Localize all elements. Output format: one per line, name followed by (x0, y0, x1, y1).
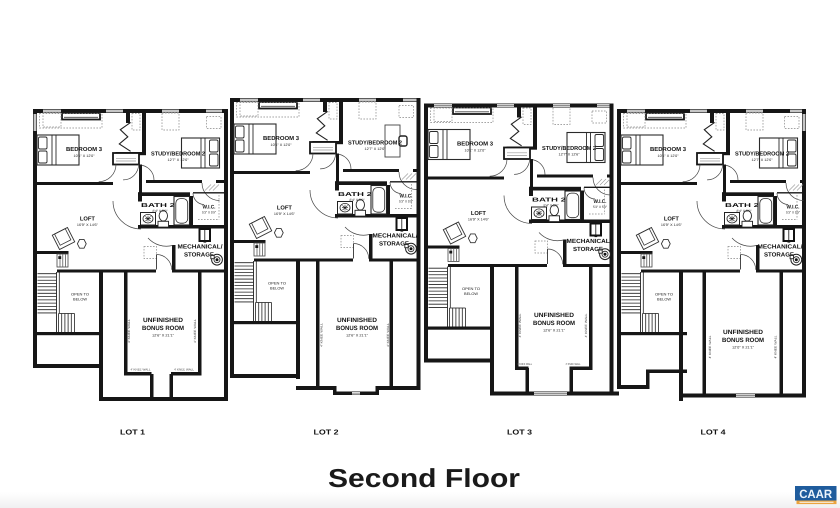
svg-text:8'4" X 5'0": 8'4" X 5'0" (737, 209, 753, 213)
svg-text:BEDROOM 3: BEDROOM 3 (650, 146, 687, 153)
svg-text:4' KNEE WALL: 4' KNEE WALL (774, 335, 778, 358)
svg-text:10'1" X 12'0": 10'1" X 12'0" (271, 143, 293, 147)
svg-text:LOT 2: LOT 2 (314, 428, 339, 437)
svg-text:8'4" X 5'0": 8'4" X 5'0" (544, 204, 560, 208)
svg-text:5'3" X 5'9": 5'3" X 5'9" (202, 211, 217, 215)
svg-text:4' KNEE WALL: 4' KNEE WALL (174, 368, 194, 372)
svg-text:UNFINISHED: UNFINISHED (534, 312, 575, 319)
svg-text:LOT 3: LOT 3 (507, 428, 532, 437)
svg-text:5'3" X 5'9": 5'3" X 5'9" (593, 205, 608, 209)
svg-text:12'7" X 12'6": 12'7" X 12'6" (752, 158, 774, 162)
svg-text:Second Floor: Second Floor (328, 463, 520, 493)
svg-text:4' KNEE WALL: 4' KNEE WALL (193, 319, 197, 343)
svg-text:MECHANICAL/: MECHANICAL/ (178, 243, 223, 250)
svg-text:4' KNEE WALL: 4' KNEE WALL (386, 323, 390, 347)
svg-text:4' KNEE WALL: 4' KNEE WALL (319, 323, 323, 347)
svg-text:LOT 4: LOT 4 (701, 428, 726, 437)
svg-text:MECHANICAL/: MECHANICAL/ (373, 232, 418, 239)
svg-text:OPEN TO: OPEN TO (655, 293, 673, 297)
svg-text:10'1" X 12'0": 10'1" X 12'0" (465, 149, 487, 153)
svg-text:8'4" X 5'0": 8'4" X 5'0" (350, 198, 366, 202)
svg-text:OPEN TO: OPEN TO (71, 293, 89, 297)
svg-text:MECHANICAL/: MECHANICAL/ (758, 243, 803, 250)
svg-text:12'0" X 21'1": 12'0" X 21'1" (732, 346, 755, 350)
svg-text:4' KNEE WALL: 4' KNEE WALL (131, 368, 151, 372)
svg-text:STUDY/BEDROOM 2: STUDY/BEDROOM 2 (735, 150, 789, 157)
svg-text:8'4" X 5'0": 8'4" X 5'0" (153, 209, 169, 213)
svg-text:BONUS ROOM: BONUS ROOM (533, 320, 575, 327)
svg-text:UNFINISHED: UNFINISHED (337, 317, 378, 324)
svg-text:4' KNEE WALL: 4' KNEE WALL (584, 313, 588, 337)
svg-text:BEDROOM 3: BEDROOM 3 (263, 135, 300, 142)
svg-text:4' KNEE WALL: 4' KNEE WALL (127, 319, 131, 343)
svg-text:BONUS ROOM: BONUS ROOM (722, 337, 764, 344)
svg-text:5'3" X 5'9": 5'3" X 5'9" (786, 211, 801, 215)
svg-text:10'1" X 12'0": 10'1" X 12'0" (658, 154, 680, 158)
svg-text:STUDY/BEDROOM 2: STUDY/BEDROOM 2 (151, 150, 205, 157)
svg-text:LOFT: LOFT (277, 205, 292, 212)
svg-text:BEDROOM 3: BEDROOM 3 (457, 141, 494, 148)
svg-text:16'9" X 14'6": 16'9" X 14'6" (468, 218, 490, 222)
svg-text:LOFT: LOFT (471, 210, 486, 217)
svg-text:4' KNEE WALL: 4' KNEE WALL (518, 313, 522, 337)
svg-text:BONUS ROOM: BONUS ROOM (142, 325, 184, 332)
svg-text:MECHANICAL/: MECHANICAL/ (567, 238, 612, 245)
svg-text:STORAGE: STORAGE (764, 252, 794, 259)
svg-text:UNFINISHED: UNFINISHED (143, 317, 184, 324)
svg-text:STORAGE: STORAGE (184, 252, 214, 259)
svg-text:STUDY/BEDROOM 2: STUDY/BEDROOM 2 (542, 145, 596, 152)
svg-text:CAAR: CAAR (799, 487, 832, 501)
svg-text:OPEN TO: OPEN TO (462, 287, 480, 291)
svg-text:16'9" X 14'6": 16'9" X 14'6" (661, 223, 683, 227)
svg-text:LOT 1: LOT 1 (120, 428, 145, 437)
svg-text:STUDY/BEDROOM 2: STUDY/BEDROOM 2 (348, 139, 402, 146)
svg-text:BELOW: BELOW (73, 298, 88, 302)
svg-text:16'9" X 14'6": 16'9" X 14'6" (274, 212, 296, 216)
svg-text:4' KNEE WALL: 4' KNEE WALL (566, 362, 581, 366)
svg-text:UNFINISHED: UNFINISHED (723, 329, 764, 336)
svg-text:12'6" X 21'1": 12'6" X 21'1" (346, 334, 369, 338)
svg-text:BEDROOM 3: BEDROOM 3 (66, 146, 103, 153)
svg-text:4' KNEE WALL: 4' KNEE WALL (708, 335, 712, 358)
svg-text:BELOW: BELOW (464, 292, 479, 296)
svg-text:OPEN TO: OPEN TO (268, 282, 286, 286)
svg-text:4' KNEE WALL: 4' KNEE WALL (517, 362, 532, 366)
svg-text:BELOW: BELOW (657, 298, 672, 302)
svg-text:12'6" X 21'1": 12'6" X 21'1" (152, 334, 175, 338)
svg-text:BELOW: BELOW (270, 287, 285, 291)
svg-text:BONUS ROOM: BONUS ROOM (336, 325, 378, 332)
svg-text:LOFT: LOFT (664, 216, 679, 223)
svg-text:12'6" X 21'1": 12'6" X 21'1" (543, 329, 566, 333)
svg-text:12'7" X 12'6": 12'7" X 12'6" (168, 158, 190, 162)
svg-text:16'9" X 14'6": 16'9" X 14'6" (77, 223, 99, 227)
svg-text:12'7" X 12'6": 12'7" X 12'6" (559, 153, 581, 157)
svg-text:10'1" X 12'0": 10'1" X 12'0" (74, 154, 96, 158)
svg-text:LOFT: LOFT (80, 216, 95, 223)
svg-text:12'7" X 12'6": 12'7" X 12'6" (365, 147, 387, 151)
